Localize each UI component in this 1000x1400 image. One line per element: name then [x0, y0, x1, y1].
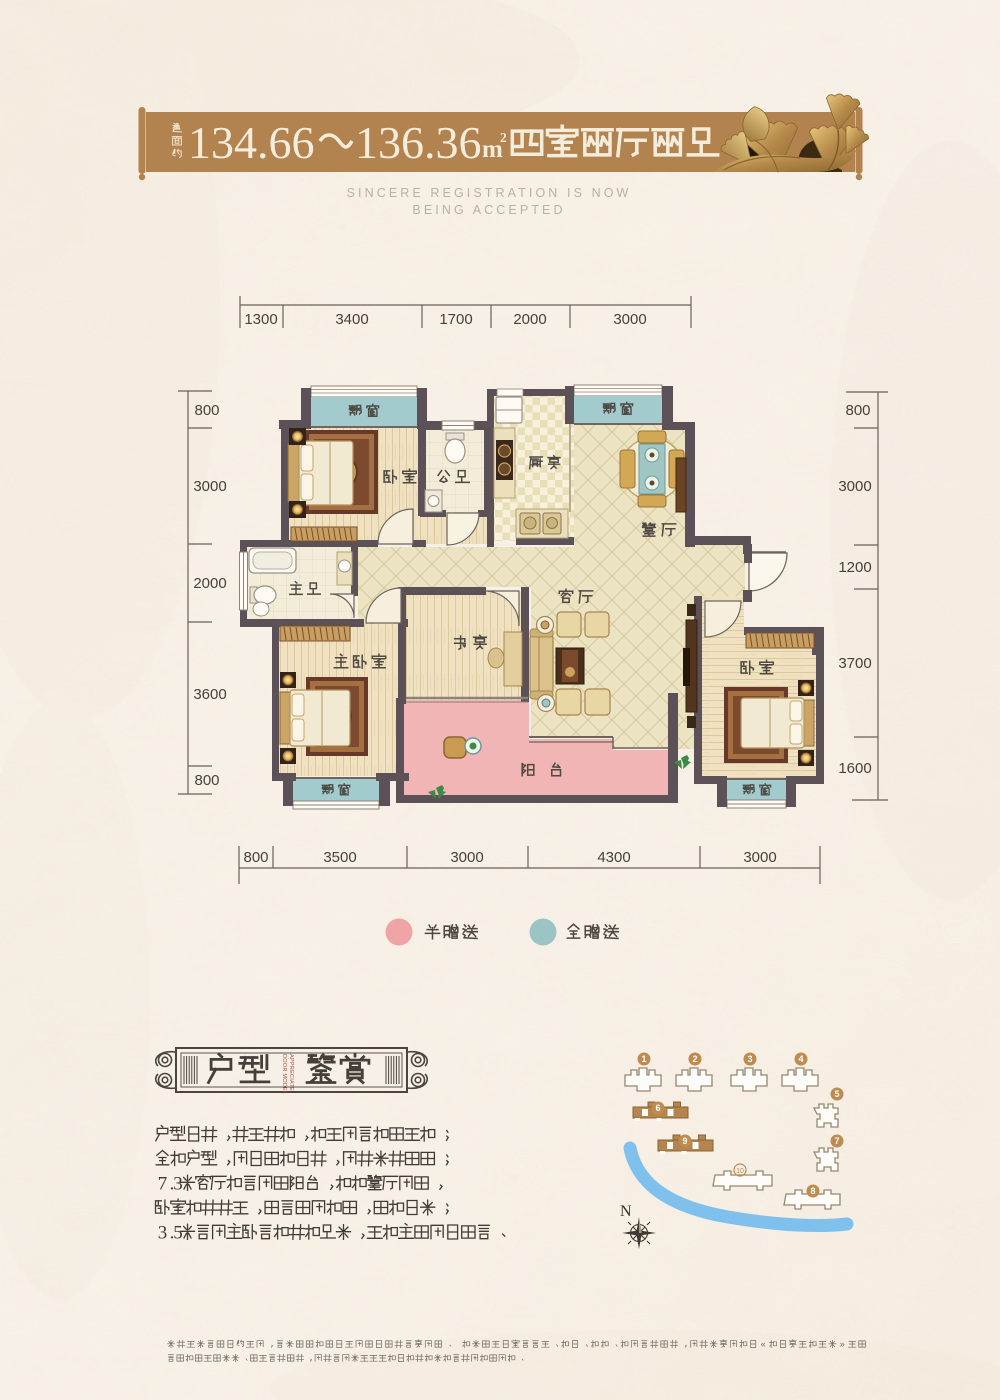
svg-text:3000: 3000 — [743, 849, 776, 866]
svg-text:7: 7 — [834, 1136, 839, 1146]
svg-text:3000: 3000 — [613, 311, 646, 328]
svg-text:3500: 3500 — [323, 849, 356, 866]
svg-text:3000: 3000 — [450, 849, 483, 866]
svg-text:136.36: 136.36 — [355, 117, 482, 168]
svg-text:1: 1 — [641, 1054, 646, 1064]
svg-text:2000: 2000 — [193, 575, 226, 592]
svg-text:800: 800 — [194, 402, 219, 419]
svg-text:2: 2 — [692, 1054, 697, 1064]
svg-text:5: 5 — [834, 1089, 839, 1099]
svg-text:2000: 2000 — [513, 311, 546, 328]
svg-text:8: 8 — [810, 1186, 815, 1196]
svg-text:1600: 1600 — [838, 760, 871, 777]
svg-text:3: 3 — [173, 1174, 183, 1195]
svg-text:»: » — [840, 1339, 845, 1349]
svg-text:3: 3 — [747, 1054, 752, 1064]
svg-text:BEING ACCEPTED: BEING ACCEPTED — [412, 203, 565, 217]
svg-text:134.66: 134.66 — [188, 117, 315, 168]
svg-text:«: « — [761, 1339, 766, 1349]
svg-text:DOOR MODEL: DOOR MODEL — [281, 1054, 287, 1094]
svg-text:800: 800 — [194, 772, 219, 789]
svg-text:APPRECIATE: APPRECIATE — [288, 1054, 294, 1091]
svg-text:800: 800 — [845, 402, 870, 419]
svg-text:2: 2 — [500, 130, 507, 145]
svg-text:3600: 3600 — [193, 686, 226, 703]
svg-text:SINCERE REGISTRATION IS NOW: SINCERE REGISTRATION IS NOW — [347, 186, 632, 200]
svg-text:1700: 1700 — [439, 311, 472, 328]
svg-text:3700: 3700 — [838, 655, 871, 672]
svg-text:5: 5 — [173, 1223, 183, 1244]
svg-text:800: 800 — [243, 849, 268, 866]
svg-text:3000: 3000 — [838, 478, 871, 495]
svg-text:3: 3 — [158, 1223, 168, 1244]
svg-text:9: 9 — [682, 1136, 687, 1146]
svg-text:4: 4 — [798, 1054, 803, 1064]
svg-text:N: N — [620, 1203, 632, 1220]
svg-text:6: 6 — [655, 1103, 660, 1113]
svg-text:10: 10 — [736, 1168, 744, 1175]
svg-text:7: 7 — [158, 1174, 168, 1195]
svg-text:3400: 3400 — [335, 311, 368, 328]
svg-text:1300: 1300 — [244, 311, 277, 328]
svg-text:1200: 1200 — [838, 559, 871, 576]
svg-text:3000: 3000 — [193, 478, 226, 495]
svg-text:4300: 4300 — [597, 849, 630, 866]
